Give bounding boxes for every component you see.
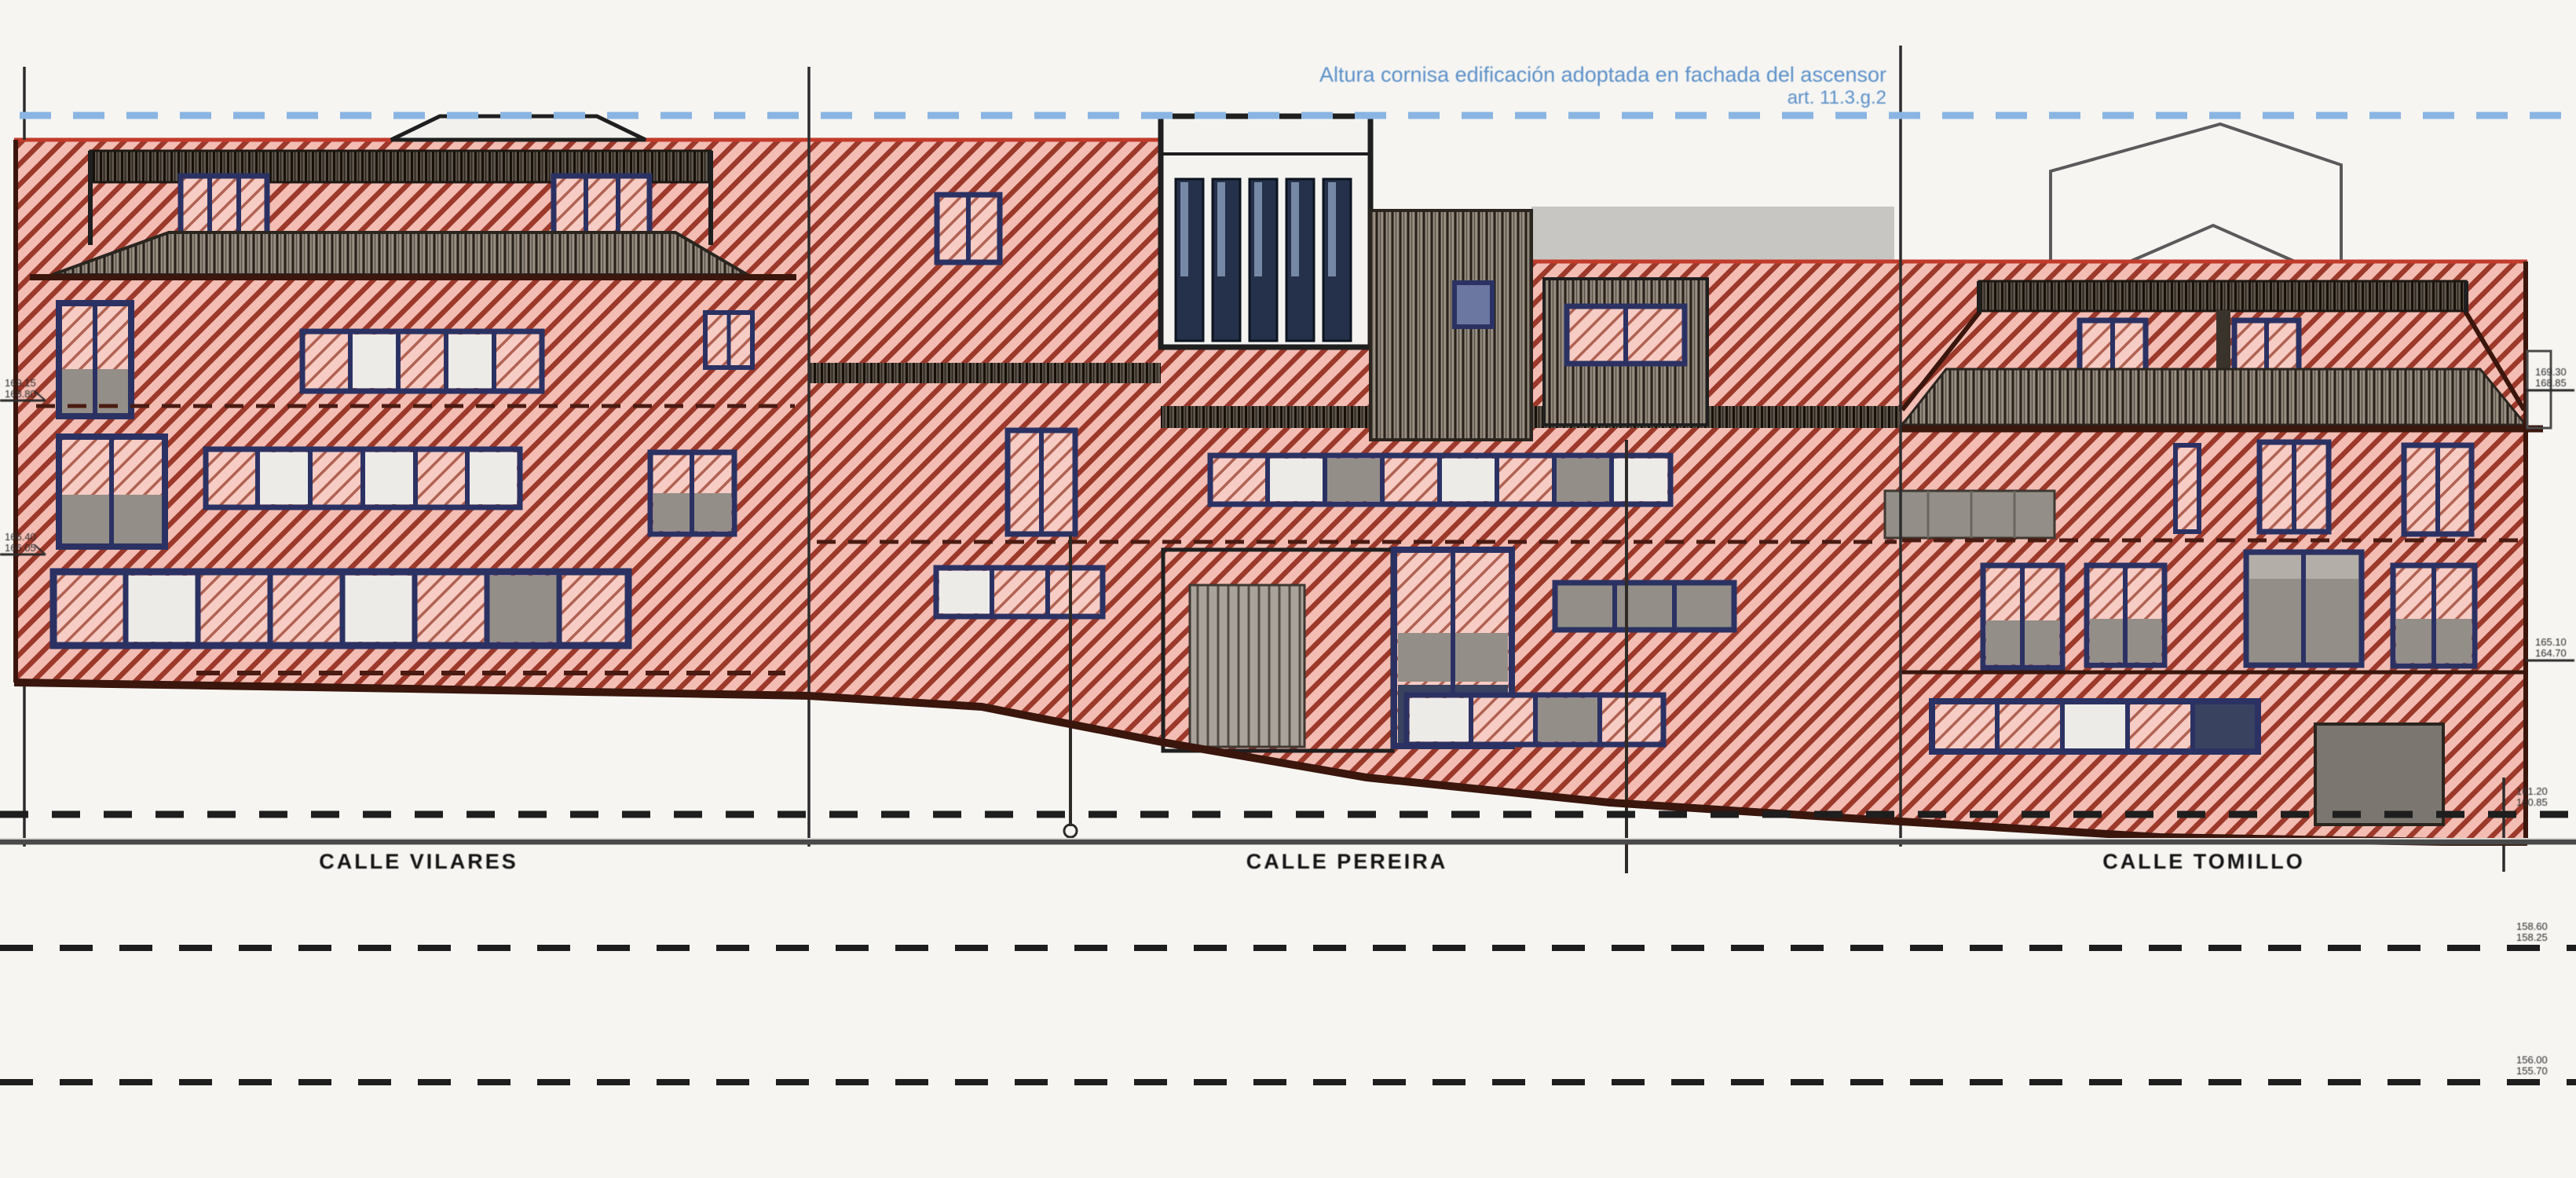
svg-text:166.40: 166.40 — [5, 531, 36, 543]
lift-tower-windows — [1176, 179, 1351, 341]
svg-text:158.60: 158.60 — [2516, 920, 2548, 932]
svg-text:165.10: 165.10 — [2535, 636, 2567, 648]
max-height-note-line2: art. 11.3.g.2 — [1787, 87, 1886, 108]
svg-text:166.05: 166.05 — [5, 542, 36, 554]
right-balcony-band — [1885, 491, 2055, 538]
middle-low-band-window — [1407, 695, 1663, 744]
right-upper-window — [2404, 445, 2472, 534]
left-attic-window — [554, 176, 649, 237]
street-label-vilares: CALLE VILARES — [319, 850, 518, 873]
background-building-block — [1531, 207, 1894, 263]
lift-tower — [1161, 116, 1370, 347]
left-attic-window — [181, 176, 267, 237]
dormer-small-window — [1454, 283, 1492, 327]
middle-low-window — [936, 568, 1103, 616]
street-elevation-canvas: Altura cornisa edificación adoptada en f… — [0, 0, 2576, 1178]
left-roof-bump — [391, 116, 646, 140]
middle-tall-window — [1008, 430, 1075, 534]
entrance-door — [1190, 585, 1304, 747]
svg-text:169.15: 169.15 — [5, 377, 36, 389]
middle-window-band — [1210, 455, 1670, 504]
elevation-drawing-sheet: Altura cornisa edificación adoptada en f… — [0, 0, 2576, 1178]
right-narrow-window — [2175, 445, 2199, 532]
right-mid-window — [1983, 565, 2062, 668]
svg-text:155.70: 155.70 — [2516, 1065, 2548, 1077]
right-mid-window — [2087, 565, 2164, 665]
right-mid-window — [2393, 565, 2475, 666]
datum-label: 158.60 158.25 — [2516, 920, 2548, 943]
svg-text:169.30: 169.30 — [2535, 366, 2567, 378]
right-hip-roof — [1902, 369, 2526, 425]
datum-label: 156.00 155.70 — [2516, 1054, 2548, 1077]
svg-text:168.85: 168.85 — [2535, 377, 2567, 389]
right-mid-gray-window — [2246, 552, 2362, 665]
middle-left-window — [937, 195, 1000, 262]
svg-text:160.85: 160.85 — [2516, 796, 2548, 808]
left-hip-roof — [52, 232, 748, 275]
middle-second-dormer — [1544, 279, 1707, 425]
left-ground-window-band — [53, 572, 628, 646]
svg-text:164.70: 164.70 — [2535, 647, 2567, 659]
middle-gray-window-band — [1555, 583, 1734, 630]
street-label-pereira: CALLE PEREIRA — [1246, 850, 1448, 873]
right-attic-band — [1979, 281, 2466, 311]
street-label-tomillo: CALLE TOMILLO — [2102, 850, 2304, 873]
svg-text:168.80: 168.80 — [5, 388, 36, 400]
datum-label: 161.20 160.85 — [2516, 785, 2548, 808]
max-height-note-line1: Altura cornisa edificación adoptada en f… — [1319, 63, 1886, 86]
right-low-band-window — [1932, 701, 2258, 752]
svg-text:158.25: 158.25 — [2516, 931, 2548, 943]
middle-left-eave-band — [809, 363, 1161, 383]
right-upper-window — [2259, 442, 2329, 532]
svg-text:161.20: 161.20 — [2516, 785, 2548, 797]
right-garage-block — [2315, 724, 2443, 825]
middle-dark-dormer-block — [1370, 210, 1531, 440]
svg-text:156.00: 156.00 — [2516, 1054, 2548, 1066]
